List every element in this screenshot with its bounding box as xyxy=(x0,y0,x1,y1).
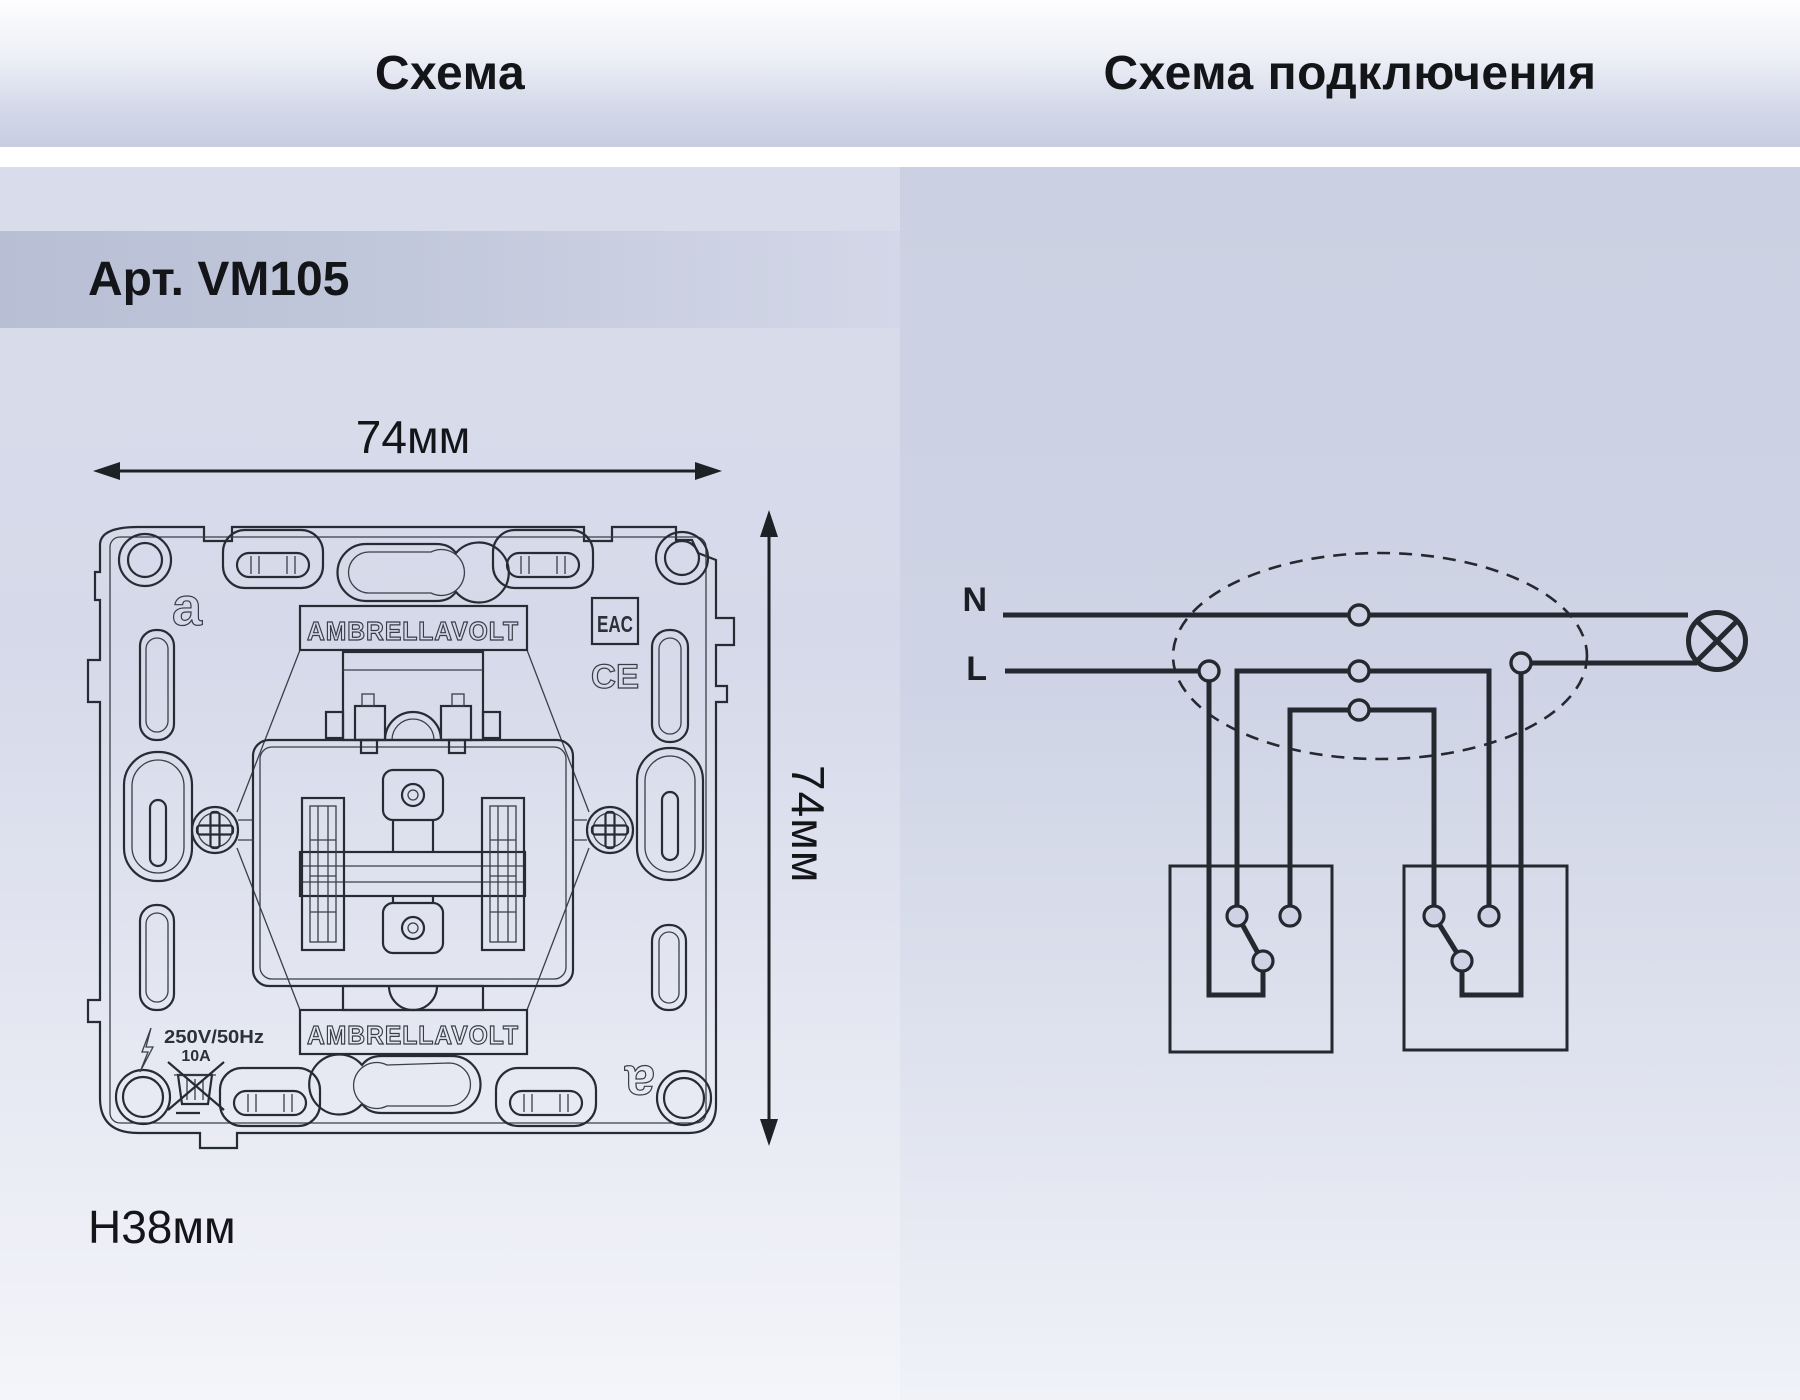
header-cell-wiring: Схема подключения xyxy=(900,0,1800,147)
eac-mark: EAC xyxy=(592,598,638,644)
left-edge-slots xyxy=(124,630,192,1010)
header-divider-gap xyxy=(0,147,1800,167)
upper-assembly xyxy=(326,652,500,740)
junction-lamp-return xyxy=(1511,653,1531,673)
infographic-page: Схема Схема подключения Арт. VM105 74мм … xyxy=(0,0,1800,1400)
brand-panel-bottom: AMBRELLAVOLT xyxy=(300,1010,527,1054)
phillips-screw-left xyxy=(192,807,253,853)
bottom-claw-slot-left xyxy=(220,1068,320,1126)
lower-assembly xyxy=(343,986,483,1010)
rating-current: 10A xyxy=(181,1048,211,1065)
brand-text-top: AMBRELLAVOLT xyxy=(307,616,519,646)
switch-1 xyxy=(1170,866,1332,1052)
bottom-keyhole-slot xyxy=(309,1055,480,1115)
logo-mark-top-left: a xyxy=(172,577,203,637)
traveler-wire-2 xyxy=(1290,710,1434,906)
terminal-screw-bottom xyxy=(383,903,443,953)
switch-2-lever xyxy=(1439,924,1457,953)
schema-title: Схема xyxy=(0,0,900,147)
eac-text: EAC xyxy=(597,611,633,637)
contact-stack-right xyxy=(482,798,524,950)
height-arrow xyxy=(760,510,778,1146)
contact-stack-left xyxy=(302,798,344,950)
switch-1-lever xyxy=(1242,924,1258,953)
width-arrow xyxy=(93,462,722,480)
lightning-icon xyxy=(140,1028,153,1072)
line-label: L xyxy=(966,650,987,688)
mechanism-drawing: AMBRELLAVOLT AMBRELLAVOLT xyxy=(0,167,900,1400)
crossed-bin-icon xyxy=(168,1062,224,1113)
junction-traveler-1 xyxy=(1349,661,1369,681)
right-edge-slots xyxy=(637,630,703,1010)
lamp-icon xyxy=(1689,613,1746,670)
neutral-label: N xyxy=(962,581,987,619)
phillips-screw-right xyxy=(572,807,633,853)
brand-text-bottom: AMBRELLAVOLT xyxy=(307,1020,519,1050)
bottom-claw-slot-right xyxy=(496,1068,596,1126)
wiring-diagram: N L xyxy=(900,167,1800,1400)
frame-diagonals xyxy=(237,650,589,1010)
junction-traveler-2 xyxy=(1349,700,1369,720)
top-keyhole-slot xyxy=(338,543,509,603)
wiring-title: Схема подключения xyxy=(900,0,1800,147)
rating-voltage: 250V/50Hz xyxy=(164,1027,264,1047)
corner-hole-top-left xyxy=(119,534,171,586)
top-claw-slot-left xyxy=(223,530,323,588)
header-cell-schema: Схема xyxy=(0,0,900,147)
switch-module xyxy=(253,740,573,1010)
junction-neutral xyxy=(1349,605,1369,625)
junction-line xyxy=(1199,661,1219,681)
corner-hole-bottom-left xyxy=(116,1070,170,1124)
logo-mark-bottom-right: a xyxy=(624,1054,655,1114)
terminal-screw-top xyxy=(383,770,443,820)
corner-hole-bottom-right xyxy=(657,1071,711,1125)
switch-2 xyxy=(1404,866,1567,1050)
brand-panel-top: AMBRELLAVOLT xyxy=(300,606,527,650)
ce-mark: CE xyxy=(591,658,639,696)
